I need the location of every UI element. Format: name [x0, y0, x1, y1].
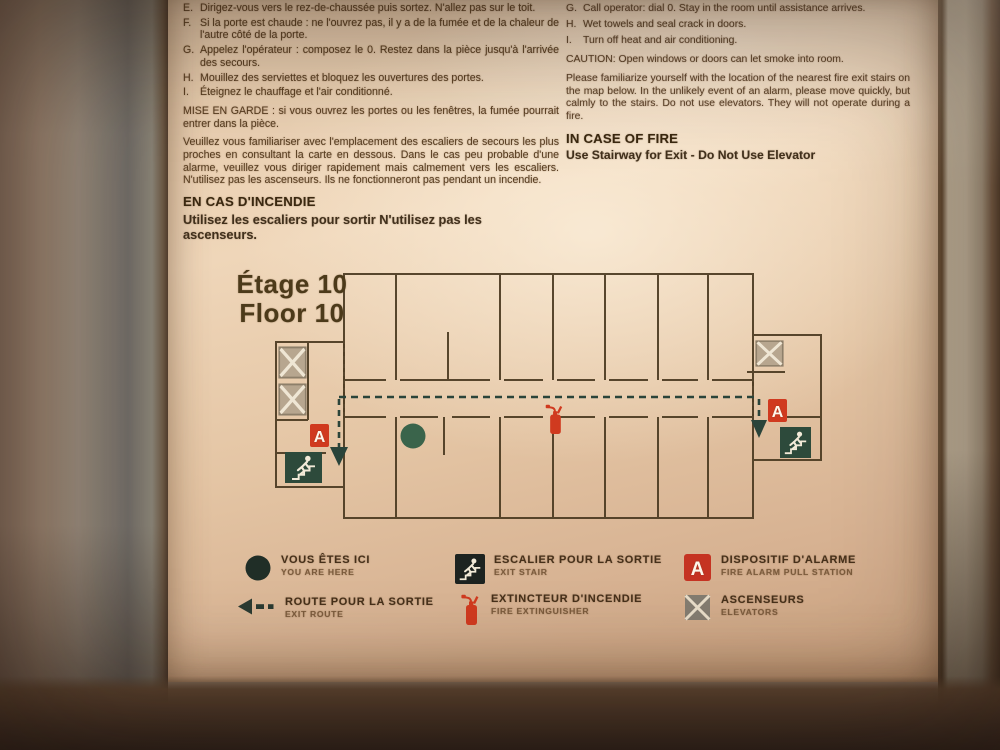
item-text: Éteignez le chauffage et l'air condition… — [200, 86, 559, 99]
floor-title: Étage 10 Floor 10 — [226, 270, 358, 328]
item-text: Si la porte est chaude : ne l'ouvrez pas… — [200, 17, 559, 42]
floor-title-en: Floor 10 — [226, 299, 358, 328]
elevator-icon — [684, 594, 712, 622]
legend-label-fr: EXTINCTEUR D'INCENDIE — [491, 593, 642, 605]
item-text: Dirigez-vous vers le rez-de-chaussée pui… — [200, 2, 559, 15]
instruction-item-en: G. Call operator: dial 0. Stay in the ro… — [566, 3, 910, 16]
french-instructions: E. Dirigez-vous vers le rez-de-chaussée … — [183, 2, 559, 242]
legend-label-en: EXIT STAIR — [494, 567, 662, 577]
item-letter: F. — [183, 17, 200, 42]
legend-label-en: EXIT ROUTE — [285, 609, 434, 619]
legend-item-you-are-here: VOUS ÊTES ICI YOU ARE HERE — [244, 554, 370, 582]
right-wall — [938, 0, 1000, 750]
item-letter: G. — [566, 3, 583, 16]
legend-label-fr: ESCALIER POUR LA SORTIE — [494, 554, 662, 566]
item-letter: G. — [183, 44, 200, 69]
exit-stair-icon — [455, 554, 485, 584]
item-text: Appelez l'opérateur : composez le 0. Res… — [200, 44, 559, 69]
exit-stair-icon — [285, 452, 322, 483]
instruction-item-fr: F. Si la porte est chaude : ne l'ouvrez … — [183, 17, 559, 42]
elevator-icon — [279, 347, 306, 377]
left-wall — [0, 0, 168, 750]
item-letter: H. — [566, 19, 583, 32]
familiarize-paragraph-fr: Veuillez vous familiariser avec l'emplac… — [183, 136, 559, 187]
warning-text: MISE EN GARDE : si vous ouvrez les porte… — [183, 105, 559, 130]
legend-label-fr: ASCENSEURS — [721, 594, 804, 606]
instruction-item-fr: E. Dirigez-vous vers le rez-de-chaussée … — [183, 2, 559, 15]
exit-route-icon — [238, 598, 276, 615]
instruction-item-fr: H. Mouillez des serviettes et bloquez le… — [183, 72, 559, 85]
item-text: Mouillez des serviettes et bloquez les o… — [200, 72, 559, 85]
svg-text:A: A — [772, 404, 784, 421]
legend-item-exit-route: ROUTE POUR LA SORTIE EXIT ROUTE — [238, 596, 434, 619]
fire-alarm-icon: A — [768, 399, 787, 422]
english-instructions: G. Call operator: dial 0. Stay in the ro… — [566, 3, 910, 163]
item-text: Turn off heat and air conditioning. — [583, 35, 910, 48]
fire-alarm-icon: A — [310, 424, 329, 447]
familiarize-paragraph-en: Please familiarize yourself with the loc… — [566, 73, 910, 124]
fire-heading-fr: EN CAS D'INCENDIE — [183, 196, 559, 209]
instruction-item-fr: I. Éteignez le chauffage et l'air condit… — [183, 86, 559, 99]
elevator-icon — [279, 384, 306, 414]
fire-extinguisher-icon — [460, 593, 482, 627]
you-are-here-icon — [244, 554, 272, 582]
caution-text: CAUTION: Open windows or doors can let s… — [566, 54, 910, 67]
legend-label-fr: VOUS ÊTES ICI — [281, 554, 370, 566]
svg-text:A: A — [691, 559, 705, 580]
item-letter: I. — [566, 35, 583, 48]
instruction-item-en: H. Wet towels and seal crack in doors. — [566, 19, 910, 32]
instruction-item-fr: G. Appelez l'opérateur : composez le 0. … — [183, 44, 559, 69]
legend-label-en: FIRE EXTINGUISHER — [491, 606, 642, 616]
legend-label-en: ELEVATORS — [721, 607, 804, 617]
item-text: Wet towels and seal crack in doors. — [583, 19, 910, 32]
fire-alarm-icon: A — [684, 554, 712, 582]
floor-title-fr: Étage 10 — [226, 270, 358, 299]
item-letter: H. — [183, 72, 200, 85]
sign-frame-bottom — [0, 676, 1000, 750]
item-text: Call operator: dial 0. Stay in the room … — [583, 3, 910, 16]
exit-stair-icon — [780, 427, 811, 458]
fire-subheading-fr: Utilisez les escaliers pour sortir N'uti… — [183, 212, 559, 242]
legend-item-elevators: ASCENSEURS ELEVATORS — [684, 594, 804, 622]
legend-item-fire-extinguisher: EXTINCTEUR D'INCENDIE FIRE EXTINGUISHER — [460, 593, 642, 627]
legend-label-fr: DISPOSITIF D'ALARME — [721, 554, 856, 566]
photo-of-fire-evacuation-sign: E. Dirigez-vous vers le rez-de-chaussée … — [0, 0, 1000, 750]
item-letter: E. — [183, 2, 200, 15]
legend-label-en: FIRE ALARM PULL STATION — [721, 567, 856, 577]
evacuation-sign: E. Dirigez-vous vers le rez-de-chaussée … — [168, 0, 938, 682]
fire-subheading-en: Use Stairway for Exit - Do Not Use Eleva… — [566, 148, 910, 163]
elevator-icon — [756, 341, 783, 366]
route-arrow-left — [330, 447, 348, 466]
legend-label-fr: ROUTE POUR LA SORTIE — [285, 596, 434, 608]
legend-item-exit-stair: ESCALIER POUR LA SORTIE EXIT STAIR — [455, 554, 662, 584]
fire-extinguisher-icon — [546, 405, 562, 434]
fire-heading-en: IN CASE OF FIRE — [566, 133, 910, 146]
legend-item-fire-alarm: A DISPOSITIF D'ALARME FIRE ALARM PULL ST… — [684, 554, 856, 582]
legend-label-en: YOU ARE HERE — [281, 567, 370, 577]
you-are-here-dot — [401, 424, 426, 449]
item-letter: I. — [183, 86, 200, 99]
instruction-item-en: I. Turn off heat and air conditioning. — [566, 35, 910, 48]
svg-text:A: A — [314, 429, 326, 446]
